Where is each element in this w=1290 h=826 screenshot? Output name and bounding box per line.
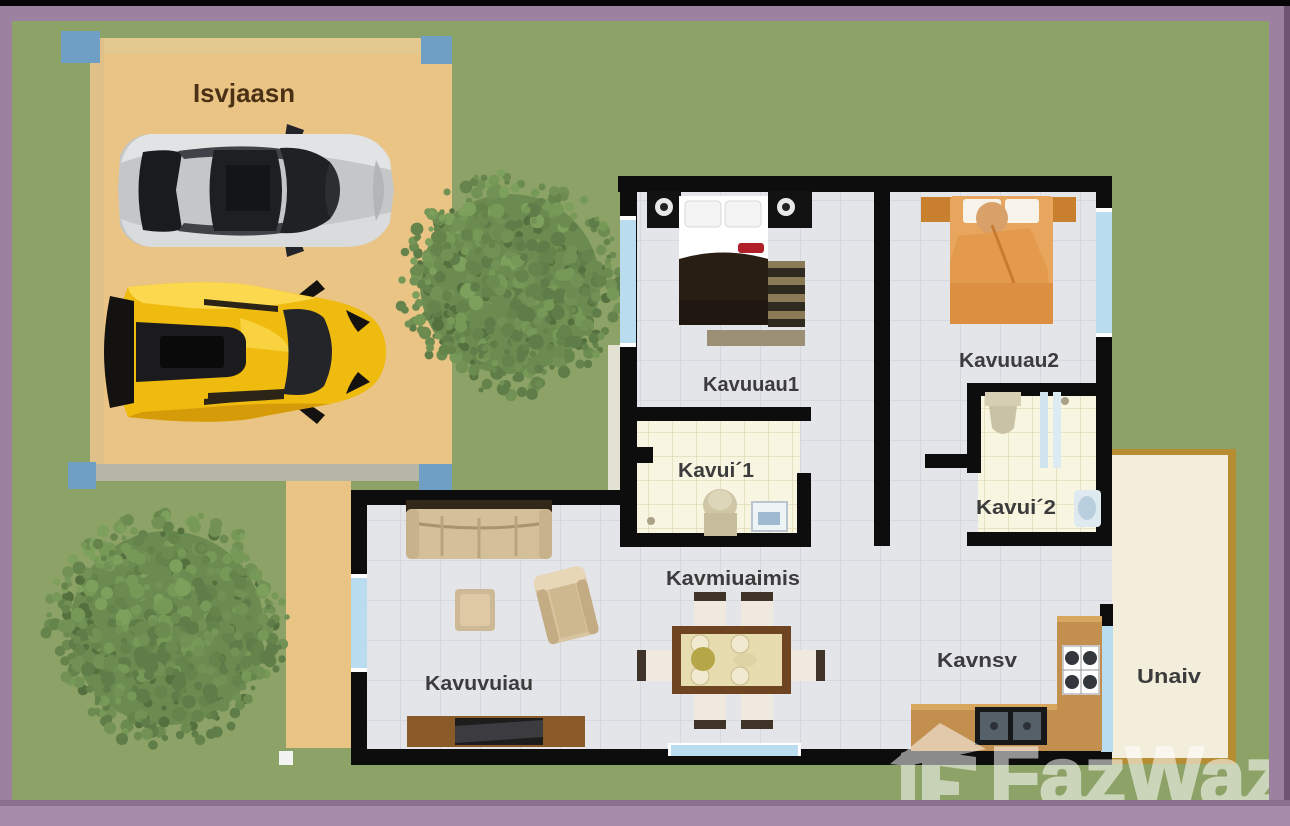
svg-text:Kavuvuiau: Kavuvuiau — [425, 673, 533, 695]
svg-text:Kavuuau2: Kavuuau2 — [959, 350, 1059, 372]
svg-text:Kavui´2: Kavui´2 — [976, 497, 1056, 519]
svg-text:Unaiv: Unaiv — [1137, 666, 1202, 688]
svg-text:Kavmiuaimis: Kavmiuaimis — [666, 568, 800, 590]
svg-text:Isvjaasn: Isvjaasn — [193, 78, 295, 108]
svg-text:Kavuuau1: Kavuuau1 — [703, 374, 799, 396]
svg-text:Kavui´1: Kavui´1 — [678, 460, 754, 482]
svg-text:Kavnsv: Kavnsv — [937, 650, 1018, 672]
